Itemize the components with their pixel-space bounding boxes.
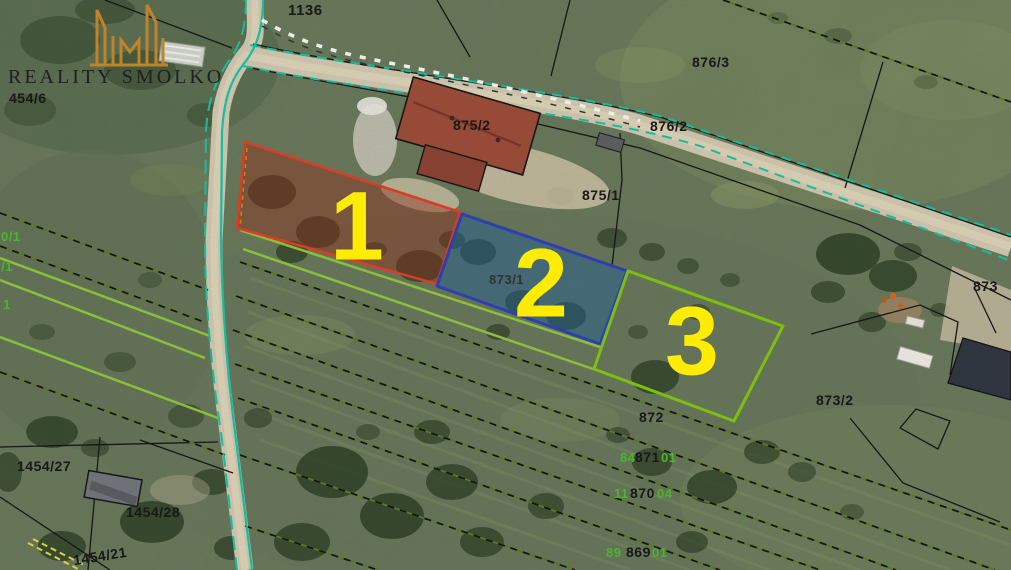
parcel-label-871: 871 <box>635 450 660 464</box>
parcel-label-green-870-before: 11 <box>614 487 629 500</box>
parcel-label-870: 870 <box>630 486 655 500</box>
parcel-label-875-2: 875/2 <box>453 118 491 132</box>
plot-2-number: 2 <box>514 235 568 332</box>
parcel-label-green-left-top: 0/1 <box>1 230 21 243</box>
logo: REALITY SMOLKO <box>0 0 240 96</box>
plot-3-number: 3 <box>665 293 719 390</box>
parcel-label-1454-27: 1454/27 <box>17 459 71 473</box>
parcel-label-green-left-mid: /1 <box>1 260 13 273</box>
aerial-cadastral-map: REALITY SMOLKO 1136 454/6 876/3 876/2 87… <box>0 0 1011 570</box>
parcel-label-454-6: 454/6 <box>9 91 47 105</box>
parcel-label-green-869-after: 01 <box>652 546 667 559</box>
logo-brand-text: REALITY SMOLKO <box>8 66 224 89</box>
parcel-label-869: 869 <box>626 545 651 559</box>
plot-1-number: 1 <box>330 178 384 275</box>
parcel-label-green-left-low: 1 <box>3 298 11 311</box>
parcel-label-873-2: 873/2 <box>816 393 854 407</box>
parcel-label-872: 872 <box>639 410 664 424</box>
parcel-label-green-869-before: 89 <box>606 546 621 559</box>
parcel-label-green-871-before: 84 <box>620 451 635 464</box>
parcel-label-876-2: 876/2 <box>650 119 688 133</box>
parcel-label-1136: 1136 <box>288 3 323 18</box>
parcel-label-green-870-after: 04 <box>657 487 672 500</box>
parcel-label-1454-28: 1454/28 <box>126 505 180 519</box>
parcel-label-green-871-after: 01 <box>661 451 676 464</box>
parcel-label-876-3: 876/3 <box>692 55 730 69</box>
parcel-label-873: 873 <box>973 279 998 293</box>
parcel-label-875-1: 875/1 <box>582 188 620 202</box>
